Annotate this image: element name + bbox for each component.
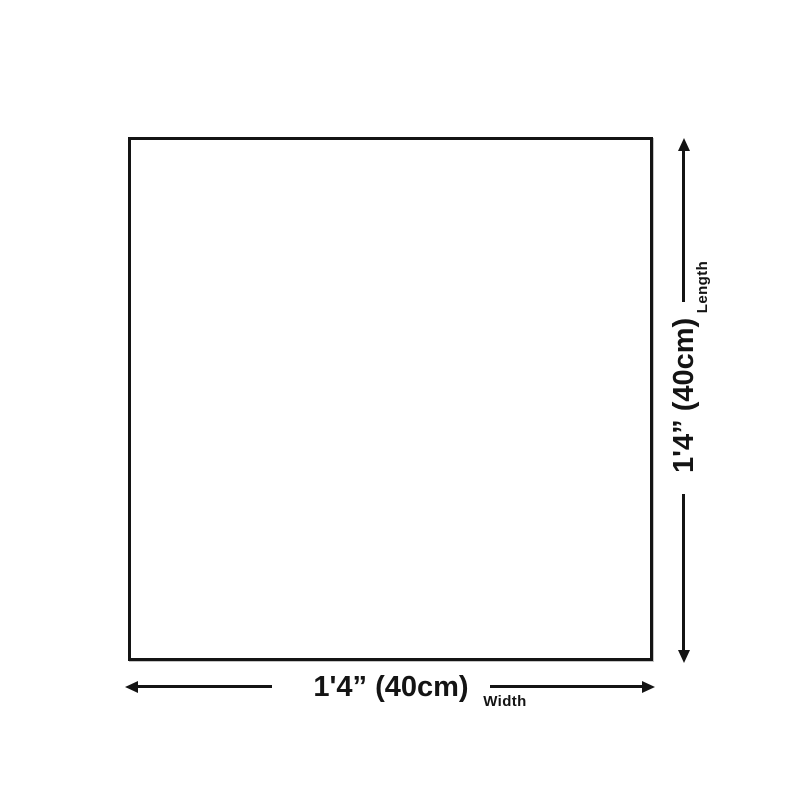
width-dimension-line-right: [490, 685, 642, 688]
width-arrow-right-icon: [642, 681, 655, 693]
length-arrow-down-icon: [678, 650, 690, 663]
width-axis-label: Width: [465, 694, 545, 710]
length-axis-label: Length: [695, 247, 711, 327]
length-value: 1'4” (40cm): [668, 323, 700, 473]
width-dimension-line-left: [138, 685, 272, 688]
dimension-diagram: Length 1'4” (40cm) 1'4” (40cm) Width: [0, 0, 800, 800]
product-outline-square: [128, 137, 653, 661]
width-arrow-left-icon: [125, 681, 138, 693]
length-dimension-line-bottom: [682, 494, 685, 650]
length-dimension-line-top: [682, 150, 685, 302]
width-value: 1'4” (40cm): [306, 671, 476, 703]
